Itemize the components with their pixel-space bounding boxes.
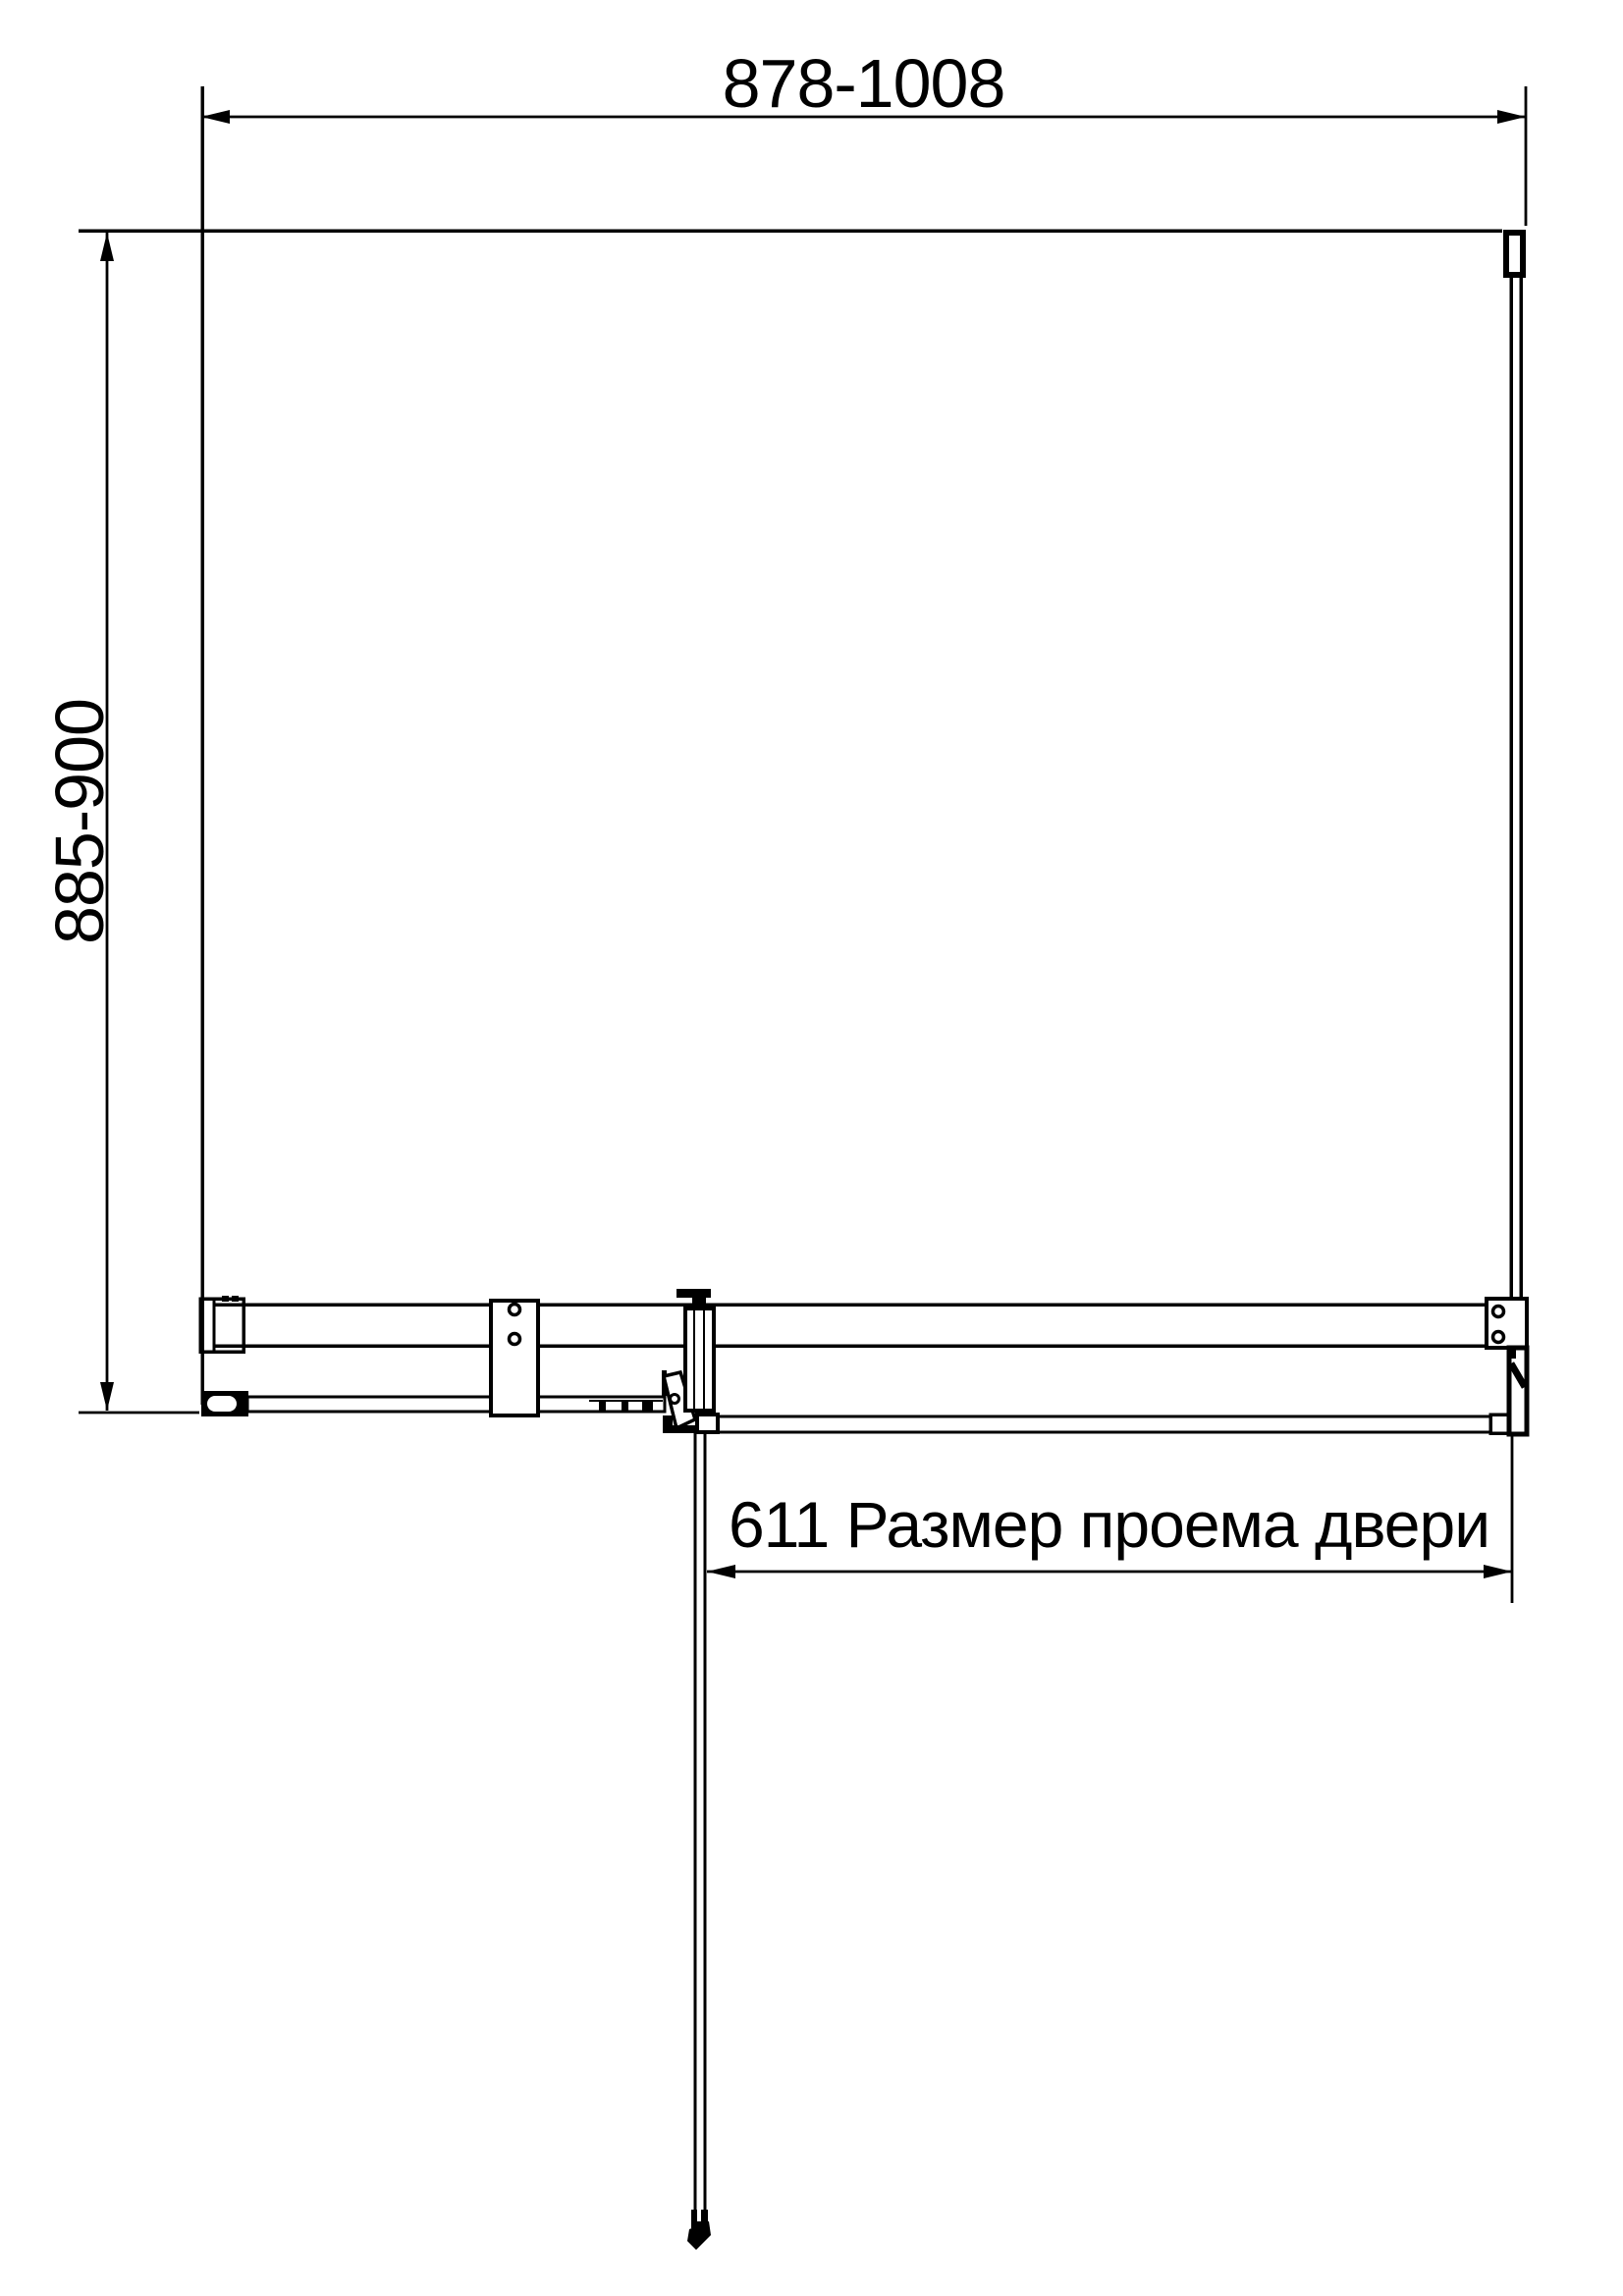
left-bottom-guide-bracket [201, 1391, 248, 1416]
arrowhead-top [100, 233, 114, 261]
fixed-bottom-panel [718, 1416, 1490, 1432]
enclosure-outline [79, 86, 1521, 1405]
overall-width-dimension-label: 878-1008 [201, 49, 1526, 118]
shower-enclosure-plan-drawing [0, 0, 1623, 2296]
screw-hole [1493, 1332, 1504, 1343]
arrowhead-left [707, 1565, 735, 1578]
screw-hole [510, 1334, 520, 1345]
door-seal-foot [687, 2210, 711, 2250]
central-bracket [491, 1301, 538, 1415]
arrowhead-right [1484, 1565, 1512, 1578]
overall-depth-dimension-label: 885-900 [45, 665, 116, 979]
screw-hole [1493, 1307, 1504, 1317]
screw-hole [510, 1305, 520, 1315]
right-wall-bracket [1487, 1299, 1527, 1348]
door-opening-dimension-label: 611 Размер проема двери [706, 1492, 1512, 1557]
fixed-panel-end-block [1490, 1415, 1509, 1433]
right-channel-profile [1509, 1348, 1527, 1434]
roller-wheel [671, 1395, 679, 1404]
top-right-wall-bracket [1506, 233, 1523, 275]
rails [214, 1305, 1509, 1433]
technical-drawing-canvas: 878-1008 885-900 611 Размер проема двери [0, 0, 1623, 2296]
arrowhead-bottom [100, 1382, 114, 1411]
